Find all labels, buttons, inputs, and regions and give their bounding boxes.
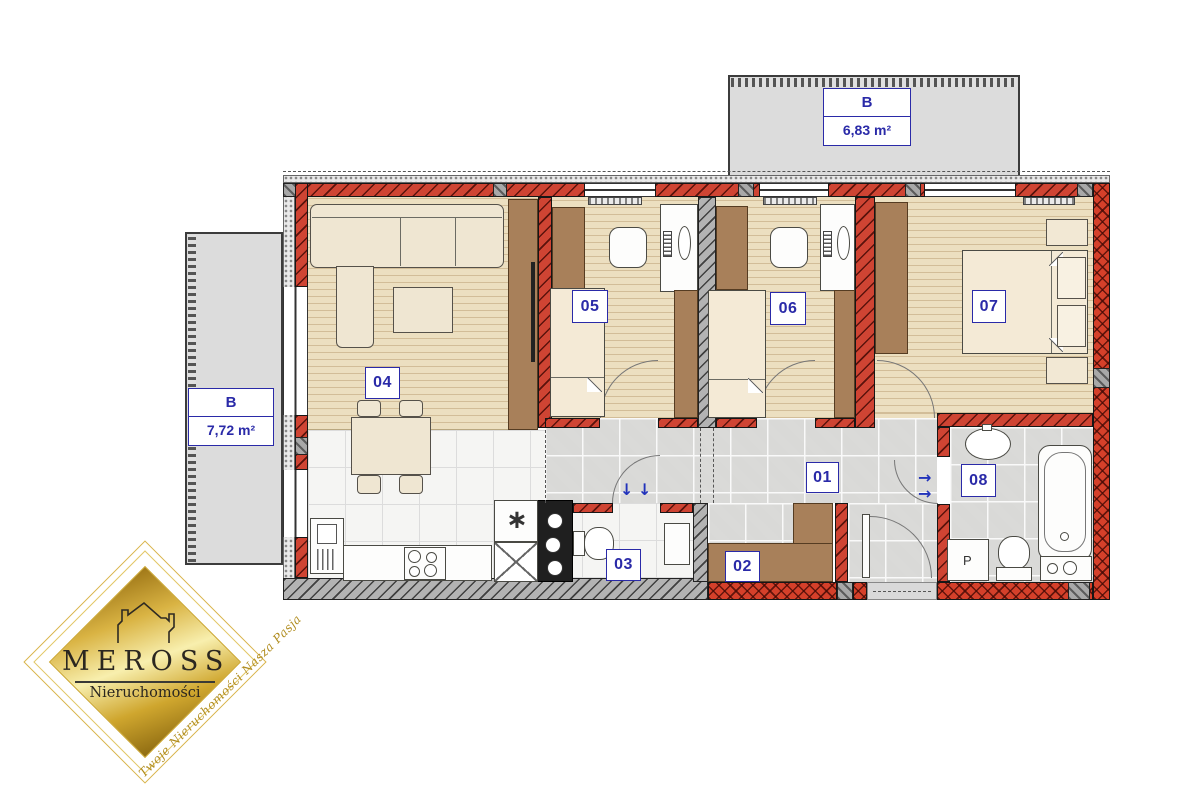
logo-divider (75, 681, 215, 683)
wall-segment (658, 418, 698, 428)
toilet-bowl (998, 536, 1030, 570)
bathroom-sink (965, 428, 1011, 460)
wall-segment (708, 582, 837, 600)
radiator (763, 197, 817, 205)
room-label-05: 05 (572, 290, 608, 323)
burner-icon (408, 550, 421, 563)
wall-segment (716, 418, 757, 428)
wall-segment (573, 503, 613, 513)
wall-segment (835, 503, 848, 582)
radiator (1023, 197, 1075, 205)
plumbing-wall (537, 500, 573, 582)
column (1077, 183, 1093, 197)
sofa (310, 204, 504, 268)
window-room-06 (760, 183, 828, 197)
entrance-threshold (867, 582, 937, 600)
burner-icon (426, 552, 437, 563)
wall-segment (853, 582, 867, 600)
wall-segment (545, 418, 600, 428)
wall-room-07-bottom (937, 413, 1093, 427)
room-label-01: 01 (806, 462, 839, 493)
chair (357, 475, 381, 494)
sofa-line (400, 218, 401, 266)
washer-label: P (963, 553, 972, 568)
column (1093, 368, 1110, 388)
balcony-top-letter: B (824, 89, 910, 117)
column (1068, 582, 1090, 600)
sofa-line (312, 217, 502, 218)
balcony-edge-hatch (731, 78, 1017, 87)
wall-segment (693, 503, 708, 582)
threshold-dash (873, 591, 931, 592)
hall-floor (545, 418, 937, 503)
arrow-down-icon: ↓ (638, 482, 651, 498)
chair (399, 475, 423, 494)
balcony-top-label: B 6,83 m² (823, 88, 911, 146)
floor-plan: B 6,83 m² B 7,72 m² (0, 0, 1200, 800)
balcony-top-area: 6,83 m² (824, 117, 910, 144)
window-kitchen (283, 470, 308, 537)
pillow (1057, 305, 1086, 347)
fridge-detail (317, 524, 337, 544)
balcony-left-letter: B (189, 389, 273, 417)
room-label-08: 08 (961, 464, 996, 497)
keyboard-icon (823, 231, 832, 257)
bathtub (1038, 445, 1092, 561)
column (738, 183, 754, 197)
wall-06-07 (855, 197, 875, 428)
burner-icon (424, 564, 437, 577)
chair (357, 400, 381, 417)
column (295, 437, 308, 455)
nightstand (1046, 219, 1088, 246)
sink-star-icon: ∗ (506, 505, 528, 535)
passage-dash (713, 428, 714, 503)
column (905, 183, 921, 197)
keyboard-icon (663, 231, 672, 257)
monitor-icon (837, 226, 850, 260)
room-label-06: 06 (770, 292, 806, 325)
pipe-icon (547, 513, 563, 529)
bed-single (708, 290, 766, 418)
column (493, 183, 507, 197)
wardrobe (716, 206, 748, 290)
wardrobe (674, 290, 698, 418)
closet-02-floor (708, 503, 793, 543)
faucet-icon (982, 424, 992, 431)
wall-segment (660, 503, 693, 513)
insulation-top (283, 175, 1110, 183)
pipe-icon (547, 560, 563, 576)
nightstand (1046, 357, 1088, 384)
wc-cabinet (664, 523, 690, 565)
wall-segment (283, 183, 585, 197)
wall-segment (295, 183, 308, 287)
wall-segment (815, 418, 855, 428)
wall-segment (937, 427, 950, 457)
room-label-02: 02 (725, 551, 760, 582)
wardrobe (834, 290, 855, 418)
room-label-07: 07 (972, 290, 1006, 323)
wall-segment (295, 537, 308, 578)
outline-dash (283, 171, 1110, 172)
toilet-tank (996, 567, 1032, 581)
drain-icon (1060, 532, 1069, 541)
kitchen-hall-dash (545, 430, 546, 503)
window-room-07 (925, 183, 1015, 197)
pillow (1057, 257, 1086, 299)
logo-subtitle: Nieruchomości (75, 685, 215, 701)
wardrobe (552, 207, 585, 290)
arrow-right-icon: → (918, 486, 931, 502)
balcony-door-living (283, 287, 308, 415)
corner-unit (1040, 556, 1092, 581)
desk-chair (609, 227, 647, 268)
dining-table (351, 417, 431, 475)
basin-icon (1047, 563, 1058, 574)
arrow-down-icon: ↓ (620, 482, 633, 498)
pipe-icon (545, 537, 561, 553)
sofa-chaise (336, 266, 374, 348)
monitor-icon (678, 226, 691, 260)
blanket-fold (748, 378, 763, 393)
sofa-line (455, 218, 456, 266)
room-label-04: 04 (365, 367, 400, 399)
window-room-05 (585, 183, 655, 197)
balcony-left-area: 7,72 m² (189, 417, 273, 444)
burner-icon (409, 566, 420, 577)
fridge-vent (317, 549, 337, 570)
coffee-table (393, 287, 453, 333)
logo-brand: MEROSS (62, 646, 228, 677)
tv-icon (531, 262, 535, 362)
room-label-03: 03 (606, 549, 641, 581)
basin-icon (1063, 561, 1077, 575)
chair (399, 400, 423, 417)
cabinet-x (494, 542, 538, 582)
passage-dash (700, 428, 701, 503)
entrance-door-leaf (862, 514, 870, 578)
fridge (310, 518, 344, 574)
balcony-left-label: B 7,72 m² (188, 388, 274, 446)
column (837, 582, 853, 600)
wall-segment (1093, 183, 1110, 600)
wardrobe (875, 202, 908, 354)
desk-chair (770, 227, 808, 268)
radiator (588, 197, 642, 205)
house-icon (110, 601, 180, 643)
blanket-fold (587, 377, 602, 392)
